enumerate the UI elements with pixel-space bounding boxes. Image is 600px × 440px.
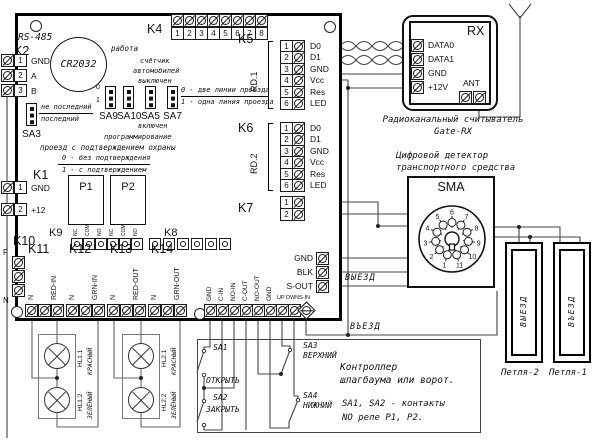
k2-pin-name: B — [31, 87, 37, 96]
lamp-hl12-label: HL1.2 — [78, 394, 85, 411]
pin-hole — [205, 238, 217, 250]
k13-pin-sig: RED-OUT — [133, 268, 140, 300]
screw-terminal — [316, 280, 329, 293]
jumper-mark-0: 0 — [96, 84, 100, 91]
screw-terminal — [316, 266, 329, 279]
k1-pin-name: GND — [31, 184, 50, 193]
k12-pin-sig: GRN-IN — [92, 275, 99, 300]
loop-1-label: Петля-1 — [549, 369, 587, 378]
mounting-hole — [11, 306, 23, 318]
entry-signal-label: ВЪЕЗД — [350, 323, 381, 332]
screw-terminal — [161, 304, 174, 317]
screw-terminal — [411, 81, 424, 94]
rx-ant-label: ANT — [463, 79, 480, 88]
screw-terminal — [473, 91, 486, 104]
k2-pin-name: GND — [31, 57, 50, 66]
annotation-counter-2: автомобилей — [133, 68, 179, 75]
sma-caption-1: Цифровой детектор — [396, 152, 488, 161]
sa5-label: SA5 — [141, 112, 160, 122]
sa3-option-0: не последний — [41, 104, 92, 111]
sma-caption-2: транспортного средства — [396, 164, 515, 173]
io-pin-name: NO-IN — [231, 283, 238, 301]
sw1-label: SA1 — [213, 344, 227, 352]
jumper-mark-1: 1 — [96, 97, 100, 104]
screw-terminal — [1, 84, 14, 97]
k9-pin-name: NO — [98, 229, 103, 237]
screw-terminal — [25, 304, 38, 317]
screw-terminal — [1, 203, 14, 216]
k9-pin-name: NC — [74, 229, 79, 236]
screw-terminal — [316, 252, 329, 265]
loop-1-text: ВЪЕЗД — [568, 295, 576, 327]
divider — [58, 164, 150, 165]
screw-terminal — [292, 208, 305, 221]
sa9-label: SA9 — [99, 112, 118, 122]
controller-caption-1: Контроллер — [340, 363, 397, 373]
rx-pin-gnd: GND — [428, 69, 447, 78]
annotation-counter-3: выключен — [138, 78, 172, 85]
pin-hole — [191, 238, 203, 250]
k4-pin: 8 — [255, 27, 268, 40]
sw4-label: SA4 — [303, 392, 317, 400]
k6-pin-name: Res — [310, 170, 325, 179]
sw2-action: ЗАКРЫТЬ — [206, 406, 240, 414]
k5-pin-name: D0 — [310, 42, 321, 51]
sa7-label: SA7 — [163, 112, 182, 122]
mounting-hole — [30, 20, 42, 32]
twisted-pair-wires — [340, 42, 404, 65]
io-pin-up: UP — [277, 296, 285, 302]
k10-fuse-label: F — [3, 249, 8, 257]
k1-pin: 1 — [14, 181, 27, 194]
k5-pin-name: Res — [310, 88, 325, 97]
k2-pin: 2 — [14, 69, 27, 82]
k14-pin-n: N — [151, 295, 158, 300]
pin-hole — [95, 238, 107, 250]
lamp-hl11-color: КРАСНЫЙ — [87, 348, 94, 375]
rx-pin-12v: +12V — [428, 83, 448, 92]
k11-label: K11 — [28, 243, 49, 256]
sw1-action: ОТКРЫТЬ — [206, 377, 240, 385]
sa3-label: SA3 — [22, 130, 41, 140]
divider — [181, 96, 268, 97]
k7-label: K7 — [238, 202, 253, 215]
k1-pin-name: +12 — [31, 206, 45, 215]
screw-terminal — [292, 97, 305, 110]
k2-pin-name: A — [31, 72, 37, 81]
divider — [39, 113, 93, 114]
screw-terminal — [12, 256, 25, 269]
screw-terminal — [1, 69, 14, 82]
wiring-diagram: 1 2 3 4 5 6 7 8 9 10 11 K4 1 2 3 4 5 6 7 — [0, 0, 600, 440]
screw-terminal — [459, 91, 472, 104]
barrier-controller-box — [197, 339, 481, 433]
exit-signal-label: ВЫЕЗД — [345, 274, 376, 283]
k13-pin-n: N — [110, 295, 117, 300]
screw-terminal — [66, 304, 79, 317]
bracket — [268, 123, 273, 191]
rx-caption: Радиоканальный считыватель — [368, 116, 538, 125]
relay-p1: P1 — [68, 175, 104, 225]
lamp-hl11-label: HL1.1 — [78, 350, 85, 367]
k13-label: K13 — [110, 243, 132, 256]
k12-pin-n: N — [69, 295, 76, 300]
battery-label: CR2032 — [60, 59, 96, 70]
det-pin-gnd: GND — [293, 254, 313, 263]
lamp-hl21-label: HL2.1 — [162, 350, 169, 367]
annotation-guard: проезд с подтверждением охраны — [40, 144, 175, 152]
lamp-hl22-label: HL2.2 — [162, 394, 169, 411]
lamp-red-2 — [128, 343, 154, 369]
io-pin-name: GND — [267, 287, 274, 301]
annotation-guard-0: 0 - без подтверждения — [62, 155, 151, 162]
mounting-hole — [324, 21, 336, 33]
k12-label: K12 — [69, 243, 91, 256]
k6-pin-name: Vcc — [310, 158, 324, 167]
controller-note-1: SA1, SA2 - контакты — [342, 400, 445, 409]
screw-terminal — [107, 304, 120, 317]
k6-pin-name: D0 — [310, 124, 321, 133]
io-pin-name: C-OUT — [243, 280, 250, 301]
controller-caption-2: шлагбаума или ворот. — [340, 376, 454, 386]
sw3-label: SA3 — [303, 342, 317, 350]
screw-terminal — [411, 53, 424, 66]
bracket — [268, 41, 273, 109]
io-pin-name: NO-OUT — [255, 275, 262, 301]
screw-terminal — [12, 270, 25, 283]
rx-title: RX — [467, 25, 484, 38]
screw-terminal — [174, 304, 187, 317]
annotation-on: включен — [138, 123, 168, 130]
screw-terminal — [1, 54, 14, 67]
k6-pin-name: GND — [310, 147, 329, 156]
k9-pin-name: NO — [134, 229, 139, 237]
lamp-green-1 — [44, 387, 70, 413]
k5-pin-name: D1 — [310, 53, 321, 62]
k9-pin-name: NC — [110, 229, 115, 236]
screw-terminal — [92, 304, 105, 317]
pin-hole — [219, 238, 231, 250]
k6-pin-name: D1 — [310, 135, 321, 144]
sw2-label: SA2 — [213, 394, 227, 402]
k2-pin: 3 — [14, 84, 27, 97]
sa10-label: SA10 — [117, 112, 141, 122]
sw4-position: НИЖНИЙ — [303, 402, 332, 410]
k5-pin-name: GND — [310, 65, 329, 74]
annotation-lines-1: 1 - одна линия проезда — [181, 99, 274, 106]
k6-port-label: RD.2 — [250, 153, 259, 174]
loop-2-text: ВЫЕЗД — [520, 295, 528, 327]
screw-terminal — [38, 304, 51, 317]
pin-hole — [131, 238, 143, 250]
io-pin-sin: S-IN — [299, 296, 310, 302]
k1-pin: 2 — [14, 203, 27, 216]
lamp-red-1 — [44, 343, 70, 369]
k9-pin-name: COM — [86, 224, 91, 236]
jumper-sa3 — [26, 103, 37, 126]
det-pin-blk: BLK — [293, 268, 313, 277]
screw-terminal — [51, 304, 64, 317]
lamp-hl22-color: ЗЕЛЁНЫЙ — [171, 392, 178, 419]
jumper-sa9 — [105, 86, 116, 109]
rx-caption-2: Gate-RX — [368, 128, 538, 137]
io-pin-name: C-IN — [219, 288, 226, 301]
k4-label: K4 — [147, 23, 162, 36]
screw-terminal — [120, 304, 133, 317]
jumper-sa5 — [145, 86, 156, 109]
k5-pin-name: LED — [310, 99, 327, 108]
screw-terminal — [148, 304, 161, 317]
rx-pin-data1: DATA1 — [428, 55, 454, 64]
relay-p2: P2 — [110, 175, 146, 225]
k6-pin-name: LED — [310, 181, 327, 190]
rs485-label: RS-485 — [18, 33, 52, 43]
annotation-counter-1: счётчик — [140, 58, 170, 65]
k9-pin-name: COM — [122, 224, 127, 236]
k14-pin-sig: GRN-OUT — [174, 267, 181, 300]
io-pin-dwn: DWN — [286, 296, 299, 302]
sw3-position: ВЕРХНИЙ — [303, 352, 337, 360]
jumper-sa10 — [123, 86, 134, 109]
sa3-option-1: последний — [41, 116, 79, 123]
k10-neutral-label: N — [3, 297, 9, 305]
screw-terminal — [292, 179, 305, 192]
controller-note-2: NO реле P1, P2. — [342, 414, 423, 423]
screw-terminal — [1, 181, 14, 194]
annotation-programming: программирование — [104, 134, 171, 141]
screw-terminal — [255, 14, 268, 27]
sma-title: SMA — [407, 181, 495, 194]
screw-terminal — [411, 39, 424, 52]
pin-hole — [177, 238, 189, 250]
lamp-hl21-color: КРАСНЫЙ — [171, 348, 178, 375]
k5-pin-name: Vcc — [310, 76, 324, 85]
k9-label: K9 — [49, 228, 62, 239]
annotation-guard-1: 1 - с подтверждением — [62, 167, 146, 174]
annotation-work: работа — [111, 45, 138, 53]
k14-label: K14 — [151, 243, 173, 256]
screw-terminal — [411, 67, 424, 80]
k5-label: K5 — [238, 33, 253, 46]
jumper-sa7 — [167, 86, 178, 109]
det-pin-sout: S-OUT — [283, 282, 313, 291]
k1-label: K1 — [33, 169, 48, 182]
screw-terminal — [79, 304, 92, 317]
k11-pin-n: N — [28, 295, 35, 300]
loop-2-label: Петля-2 — [501, 369, 539, 378]
k6-label: K6 — [238, 122, 253, 135]
lamp-hl12-color: ЗЕЛЁНЫЙ — [87, 392, 94, 419]
rx-pin-data0: DATA0 — [428, 41, 454, 50]
screw-terminal — [133, 304, 146, 317]
k5-port-label: RD.1 — [250, 71, 259, 92]
lamp-green-2 — [128, 387, 154, 413]
k2-pin: 1 — [14, 54, 27, 67]
io-pin-name: GND — [207, 287, 214, 301]
screw-terminal — [12, 284, 25, 297]
k11-pin-sig: RED-IN — [51, 276, 58, 300]
